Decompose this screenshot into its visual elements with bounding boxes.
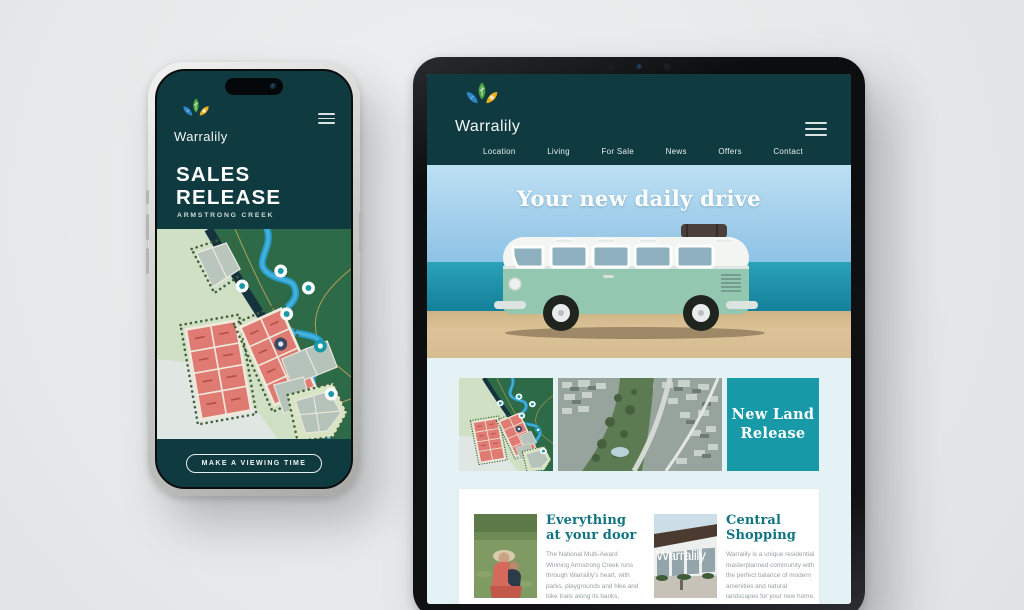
masterplan-map	[157, 229, 351, 439]
nav-item-location[interactable]: Location	[483, 147, 516, 156]
card-everything: Everything at your door The National Mul…	[474, 514, 639, 604]
tablet-camera-array	[608, 63, 671, 70]
card-heading: Central Shopping	[726, 514, 819, 543]
phone-volume-down-button	[146, 248, 149, 274]
nav-item-offers[interactable]: Offers	[718, 147, 741, 156]
main-nav: Location Living For Sale News Offers Con…	[483, 147, 803, 156]
card-heading: Everything at your door	[546, 514, 639, 543]
phone-device: Warralily SALES RELEASE ARMSTRONG CREEK	[148, 62, 360, 496]
tablet-device: Warralily Location Living For Sale News …	[413, 57, 865, 610]
new-land-release-tile[interactable]: New Land Release	[727, 378, 819, 471]
info-card: Everything at your door The National Mul…	[459, 489, 819, 604]
svg-text:Warralily: Warralily	[656, 547, 706, 563]
nav-item-news[interactable]: News	[666, 147, 687, 156]
card-body: The National Multi-Award Winning Armstro…	[546, 550, 639, 604]
phone-volume-up-button	[146, 214, 149, 240]
aerial-photo-thumbnail[interactable]	[558, 378, 722, 471]
shopping-centre-photo: Warralily	[654, 514, 717, 598]
vw-bus-illustration	[485, 209, 787, 343]
nav-item-for-sale[interactable]: For Sale	[601, 147, 634, 156]
dynamic-island	[225, 78, 283, 95]
phone-footer: MAKE A VIEWING TIME	[157, 439, 351, 488]
nav-item-contact[interactable]: Contact	[773, 147, 803, 156]
front-camera	[270, 83, 277, 90]
menu-hamburger-icon[interactable]	[318, 113, 335, 124]
card-shopping: Warralily Central Shopping Warralily is …	[654, 514, 819, 604]
tablet-screen: Warralily Location Living For Sale News …	[427, 74, 851, 604]
phone-power-button	[359, 212, 362, 252]
hero-title: Your new daily drive	[427, 186, 851, 211]
nav-item-living[interactable]: Living	[547, 147, 570, 156]
content-section: New Land Release	[427, 358, 851, 604]
aerial-photo	[558, 378, 722, 471]
masterplan-thumbnail[interactable]	[459, 378, 553, 471]
tile-label-line2: Release	[741, 425, 806, 444]
tile-label-line1: New Land	[732, 406, 815, 425]
phone-logo[interactable]: Warralily	[174, 98, 228, 144]
warralily-leaves-icon	[174, 98, 218, 128]
phone-page-title: SALES RELEASE	[176, 164, 281, 209]
card-body: Warralily is a unique residential master…	[726, 550, 819, 603]
family-photo	[474, 514, 537, 598]
brand-wordmark: Warralily	[174, 129, 228, 144]
phone-screen: Warralily SALES RELEASE ARMSTRONG CREEK	[155, 69, 353, 489]
feature-row: New Land Release	[459, 378, 819, 471]
masterplan-map-small	[459, 378, 553, 471]
brand-wordmark: Warralily	[455, 118, 520, 136]
menu-hamburger-icon[interactable]	[805, 122, 827, 136]
site-logo[interactable]: Warralily	[455, 82, 520, 136]
warralily-leaves-icon	[455, 82, 509, 118]
make-viewing-time-button[interactable]: MAKE A VIEWING TIME	[186, 454, 323, 473]
hero-banner: Your new daily drive	[427, 165, 851, 358]
phone-mute-switch	[146, 190, 149, 204]
phone-subtitle: ARMSTRONG CREEK	[177, 212, 274, 219]
site-header: Warralily Location Living For Sale News …	[427, 74, 851, 165]
